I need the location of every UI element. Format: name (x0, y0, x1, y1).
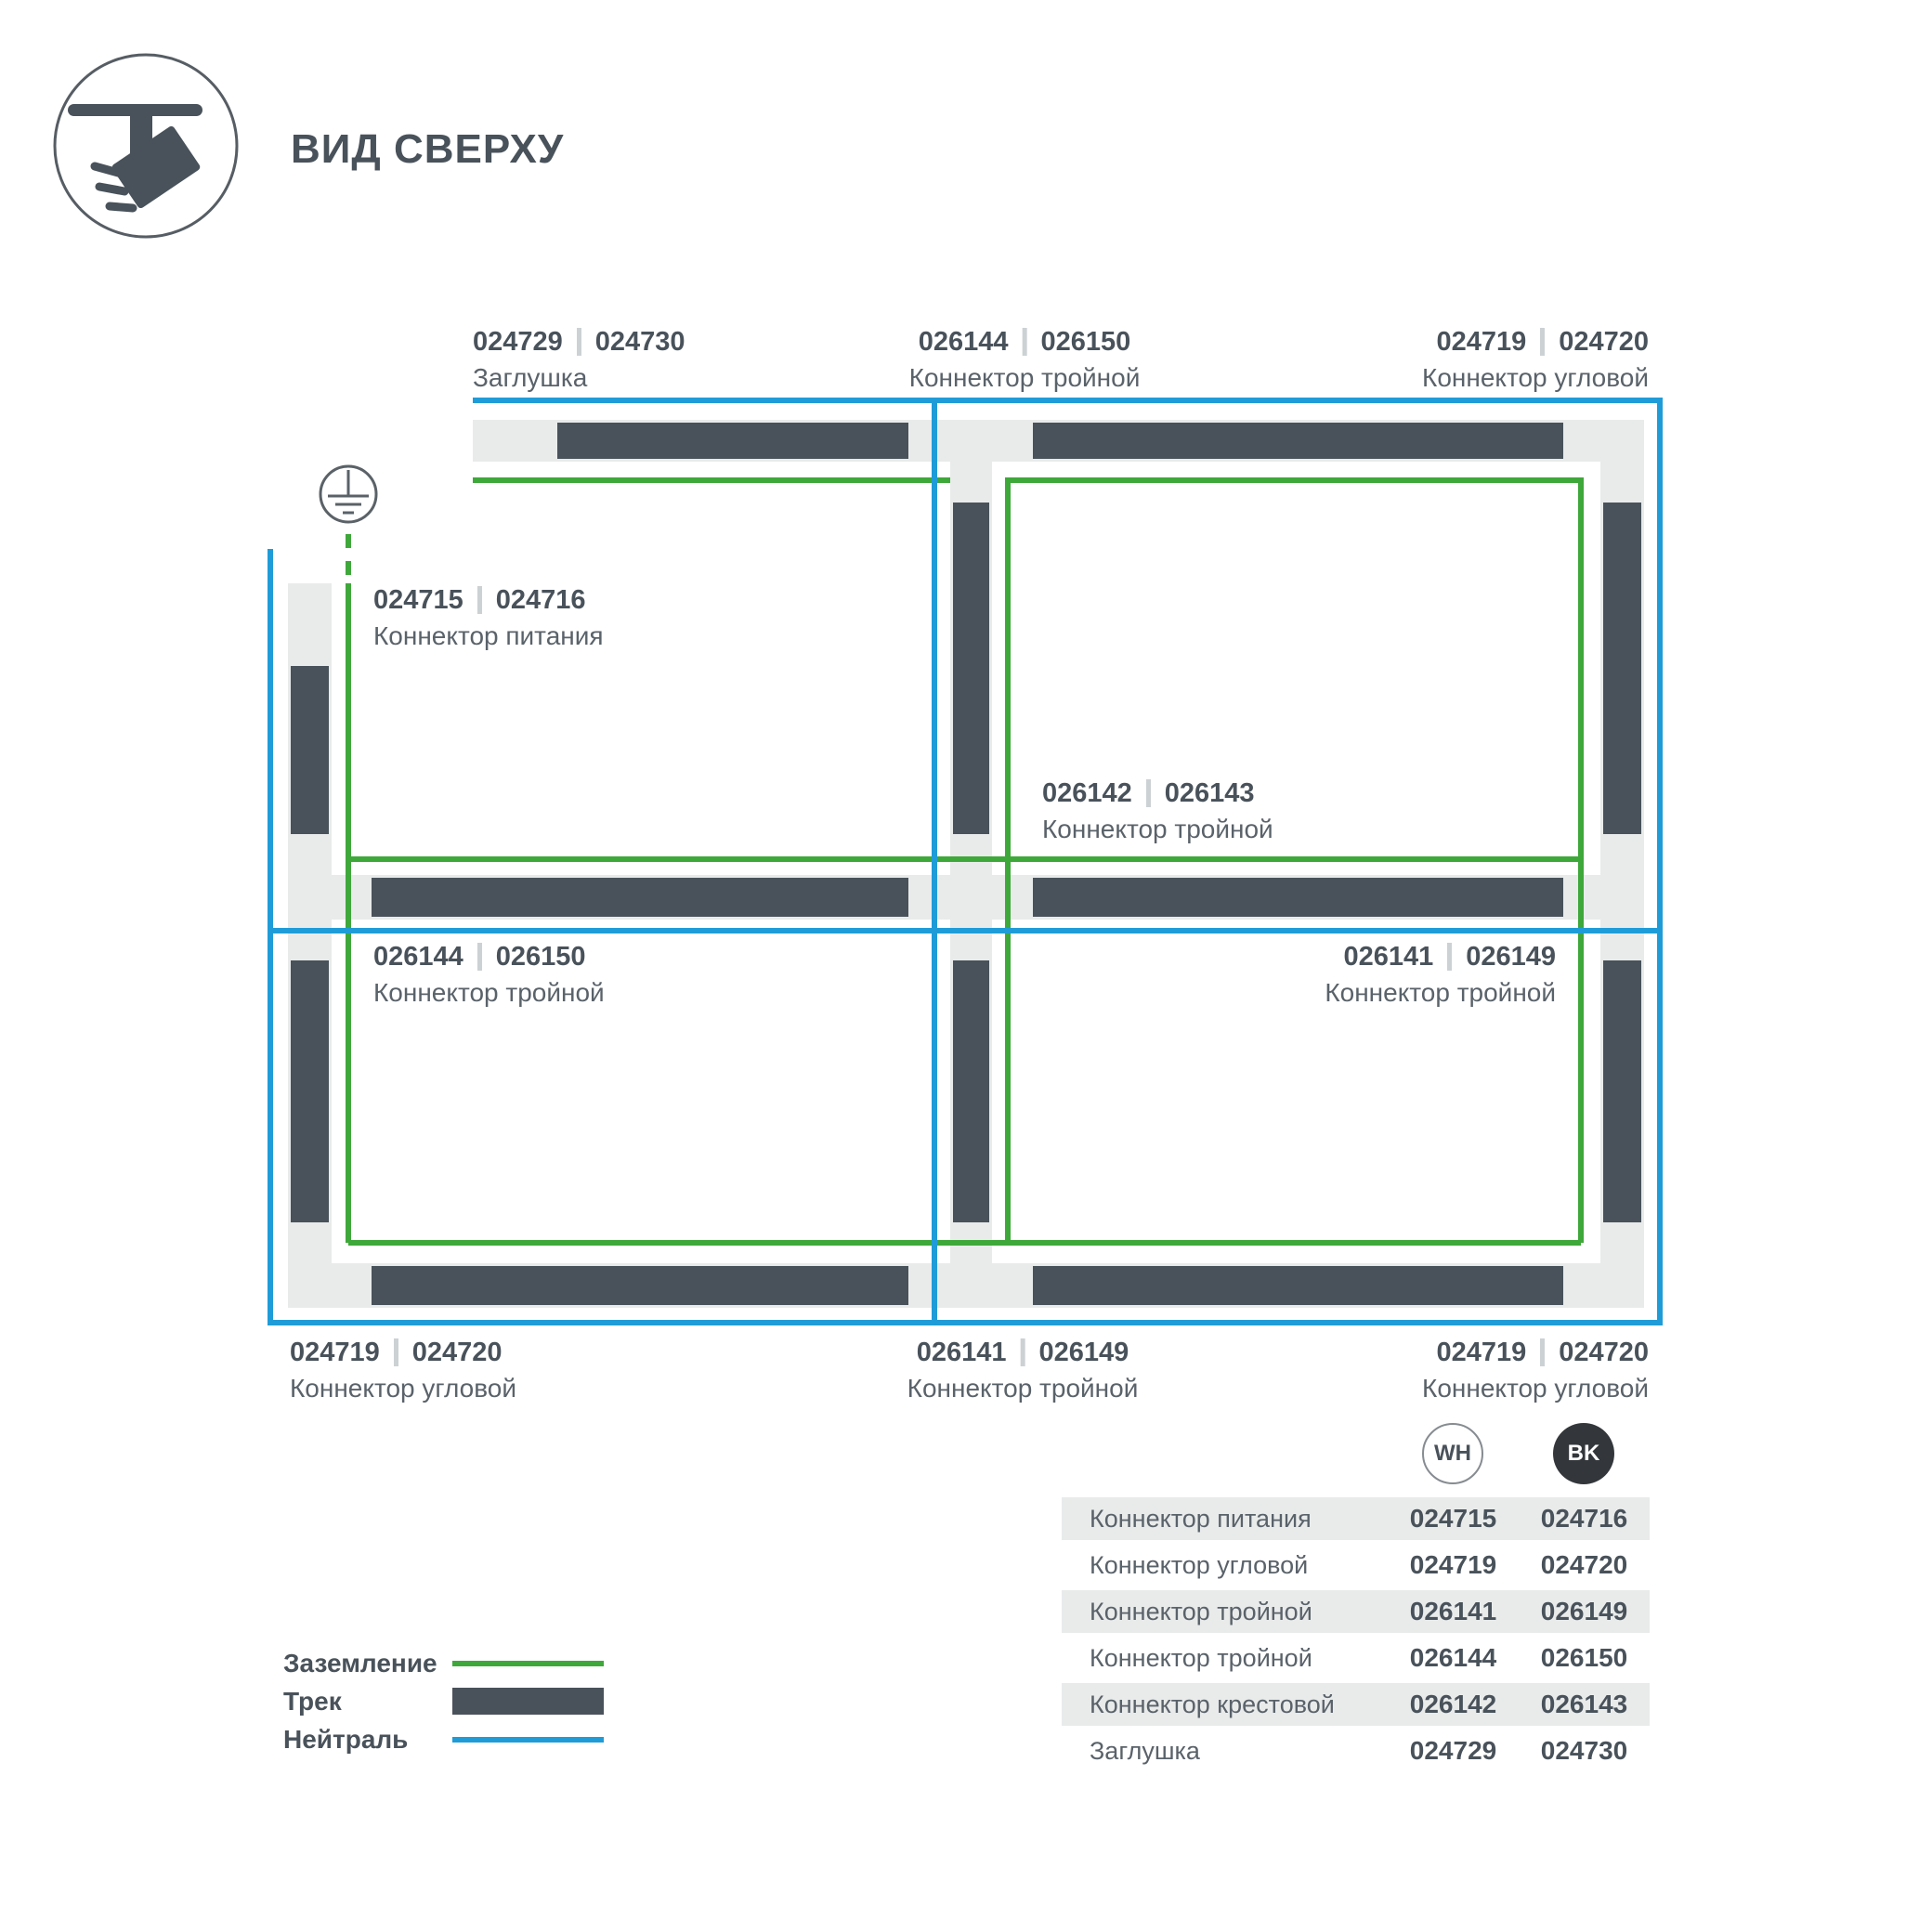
legend: Заземление Трек Нейтраль (283, 1644, 604, 1758)
label-tee-bottom: 026141 026149 Коннектор тройной (907, 1336, 1139, 1403)
code-separator (477, 943, 482, 971)
row-code-wh: 024715 (1388, 1504, 1519, 1534)
part-name: Заглушка (473, 364, 685, 392)
product-table: WH BK Коннектор питания 024715 024716 Ко… (1062, 1423, 1650, 1776)
code-wh: 024719 (1436, 1338, 1526, 1368)
article-codes: 026141 026149 (907, 1336, 1139, 1369)
track-segment (1033, 878, 1563, 917)
code-wh: 026144 (919, 327, 1009, 358)
track-segment (1033, 1266, 1563, 1305)
code-bk: 024720 (412, 1338, 503, 1368)
color-wh-label: WH (1434, 1441, 1471, 1467)
row-code-wh: 026141 (1388, 1597, 1519, 1626)
code-separator (1022, 328, 1026, 356)
legend-label: Заземление (283, 1649, 437, 1678)
code-bk: 026149 (1038, 1338, 1129, 1368)
code-separator (1540, 328, 1545, 356)
label-tee-top: 026144 026150 Коннектор тройной (909, 325, 1141, 392)
row-code-bk: 024720 (1519, 1550, 1650, 1580)
code-wh: 026142 (1042, 778, 1132, 809)
code-separator (1540, 1338, 1545, 1366)
code-wh: 026141 (917, 1338, 1007, 1368)
row-part-name: Коннектор питания (1062, 1505, 1388, 1534)
code-bk: 024720 (1559, 1338, 1649, 1368)
row-code-bk: 024716 (1519, 1504, 1650, 1534)
track-segment (1033, 423, 1563, 459)
legend-item-ground: Заземление (283, 1644, 604, 1682)
code-bk: 026150 (496, 942, 586, 973)
part-name: Коннектор угловой (290, 1375, 516, 1403)
part-name: Коннектор тройной (909, 364, 1141, 392)
row-part-name: Коннектор тройной (1062, 1644, 1388, 1673)
article-codes: 026144 026150 (909, 325, 1141, 359)
label-power-connector: 024715 024716 Коннектор питания (373, 583, 604, 650)
article-codes: 026141 026149 (1325, 940, 1556, 973)
code-bk: 026143 (1165, 778, 1255, 809)
code-wh: 024729 (473, 327, 563, 358)
code-separator (577, 328, 581, 356)
product-table-header: WH BK (1062, 1423, 1650, 1497)
ground-line-swatch (452, 1661, 604, 1666)
code-wh: 024719 (290, 1338, 380, 1368)
table-row: Коннектор тройной 026141 026149 (1062, 1590, 1650, 1633)
track-segment (953, 960, 989, 1222)
code-wh: 024719 (1436, 327, 1526, 358)
article-codes: 024719 024720 (290, 1336, 516, 1369)
article-codes: 024715 024716 (373, 583, 604, 617)
code-wh: 026144 (373, 942, 463, 973)
row-code-bk: 026149 (1519, 1597, 1650, 1626)
part-name: Коннектор угловой (1422, 1375, 1649, 1403)
track-segment (1603, 503, 1641, 834)
color-wh-badge: WH (1422, 1423, 1483, 1484)
table-row: Коннектор крестовой 026142 026143 (1062, 1683, 1650, 1726)
row-part-name: Коннектор угловой (1062, 1551, 1388, 1580)
code-bk: 024720 (1559, 327, 1649, 358)
label-tee-mid-left: 026144 026150 Коннектор тройной (373, 940, 605, 1007)
legend-item-track: Трек (283, 1682, 604, 1720)
row-part-name: Заглушка (1062, 1737, 1388, 1766)
row-code-wh: 024719 (1388, 1550, 1519, 1580)
article-codes: 026144 026150 (373, 940, 605, 973)
part-name: Коннектор питания (373, 622, 604, 650)
part-name: Коннектор тройной (1042, 816, 1273, 843)
row-code-bk: 024730 (1519, 1736, 1650, 1766)
code-bk: 026150 (1040, 327, 1130, 358)
track-segment (291, 666, 329, 834)
code-wh: 026141 (1343, 942, 1433, 973)
part-name: Коннектор тройной (373, 979, 605, 1007)
row-code-wh: 026144 (1388, 1643, 1519, 1673)
article-codes: 024719 024720 (1422, 325, 1649, 359)
code-wh: 024715 (373, 585, 463, 616)
code-separator (477, 586, 482, 614)
code-bk: 026149 (1466, 942, 1556, 973)
row-code-wh: 024729 (1388, 1736, 1519, 1766)
part-name: Коннектор тройной (1325, 979, 1556, 1007)
row-code-bk: 026143 (1519, 1690, 1650, 1719)
track-segment (291, 960, 329, 1222)
table-row: Коннектор угловой 024719 024720 (1062, 1544, 1650, 1586)
code-separator (394, 1338, 398, 1366)
label-endcap-top: 024729 024730 Заглушка (473, 325, 685, 392)
page: ВИД СВЕРХУ (0, 0, 1932, 1932)
row-code-bk: 026150 (1519, 1643, 1650, 1673)
label-cross-connector: 026142 026143 Коннектор тройной (1042, 777, 1273, 843)
track-segment (372, 1266, 908, 1305)
table-row: Коннектор питания 024715 024716 (1062, 1497, 1650, 1540)
color-bk-badge: BK (1553, 1423, 1614, 1484)
track-segment (557, 423, 908, 459)
article-codes: 024719 024720 (1422, 1336, 1649, 1369)
legend-item-neutral: Нейтраль (283, 1720, 604, 1758)
track-segment (953, 503, 989, 834)
legend-label: Трек (283, 1687, 342, 1717)
table-row: Коннектор тройной 026144 026150 (1062, 1637, 1650, 1679)
track-swatch (452, 1688, 604, 1715)
part-name: Коннектор тройной (907, 1375, 1139, 1403)
label-corner-bottom-right: 024719 024720 Коннектор угловой (1422, 1336, 1649, 1403)
code-separator (1146, 779, 1151, 807)
track-segment (1603, 960, 1641, 1222)
table-row: Заглушка 024729 024730 (1062, 1730, 1650, 1772)
label-tee-mid-right: 026141 026149 Коннектор тройной (1325, 940, 1556, 1007)
legend-label: Нейтраль (283, 1725, 408, 1755)
label-corner-bottom-left: 024719 024720 Коннектор угловой (290, 1336, 516, 1403)
label-corner-top-right: 024719 024720 Коннектор угловой (1422, 325, 1649, 392)
code-bk: 024730 (595, 327, 685, 358)
article-codes: 026142 026143 (1042, 777, 1273, 810)
color-bk-label: BK (1568, 1441, 1600, 1467)
part-name: Коннектор угловой (1422, 364, 1649, 392)
product-table-rows: Коннектор питания 024715 024716 Коннекто… (1062, 1497, 1650, 1772)
code-bk: 024716 (496, 585, 586, 616)
row-part-name: Коннектор крестовой (1062, 1690, 1388, 1719)
row-code-wh: 026142 (1388, 1690, 1519, 1719)
neutral-line-swatch (452, 1737, 604, 1743)
row-part-name: Коннектор тройной (1062, 1598, 1388, 1626)
track-segment (372, 878, 908, 917)
ground-symbol-icon (320, 466, 376, 522)
code-separator (1020, 1338, 1025, 1366)
article-codes: 024729 024730 (473, 325, 685, 359)
code-separator (1447, 943, 1452, 971)
